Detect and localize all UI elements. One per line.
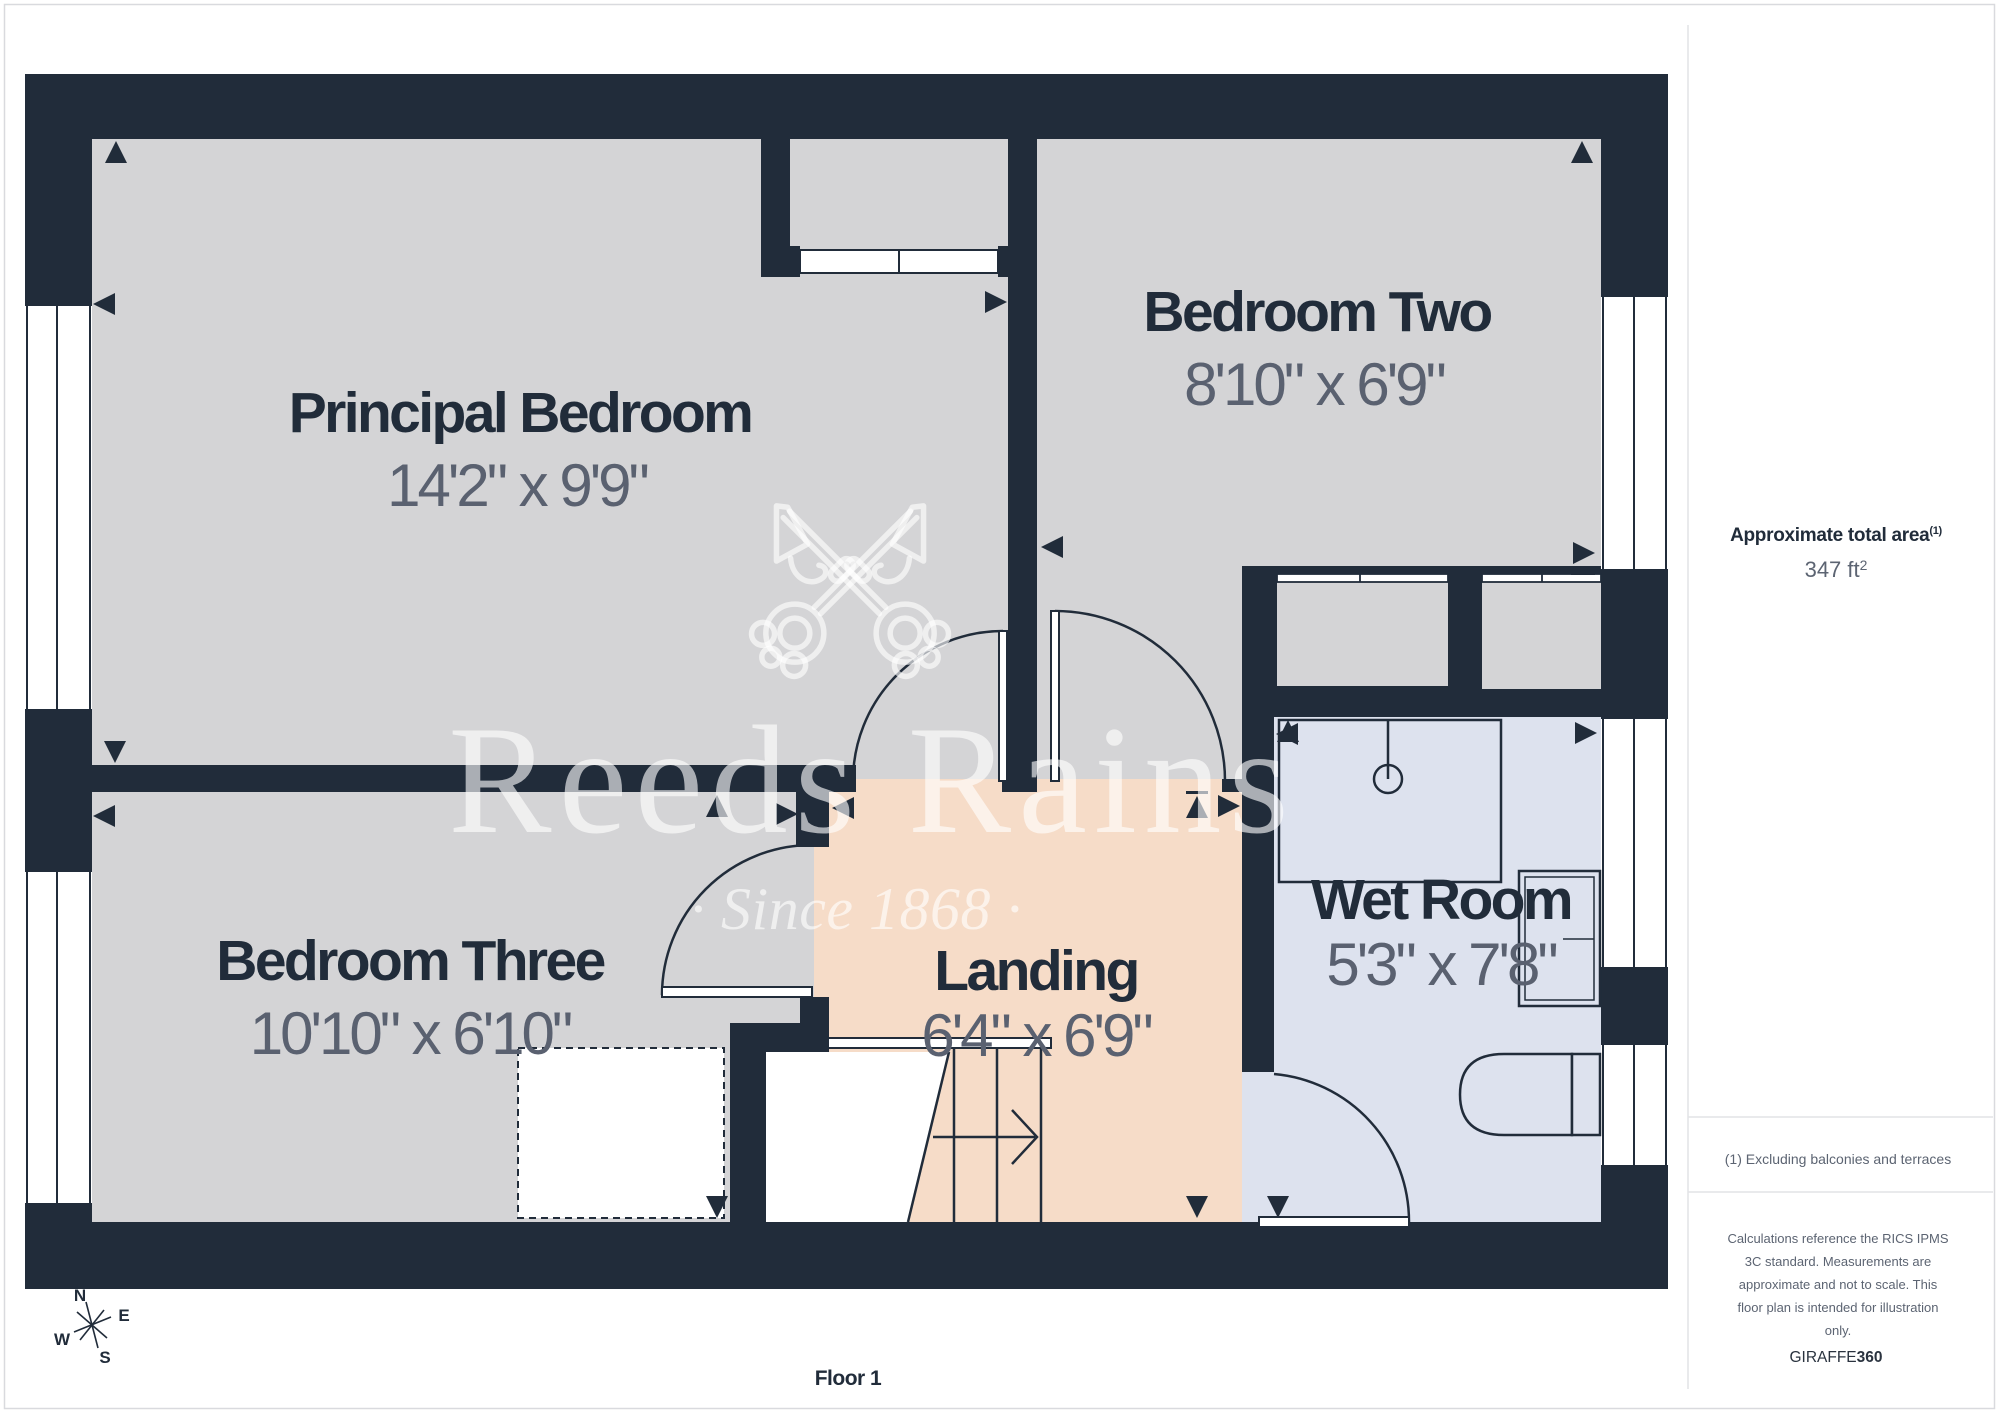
svg-text:N: N bbox=[74, 1286, 86, 1305]
svg-text:E: E bbox=[118, 1306, 129, 1325]
svg-text:8'10" x 6'9": 8'10" x 6'9" bbox=[1184, 351, 1444, 418]
svg-text:Principal Bedroom: Principal Bedroom bbox=[289, 381, 752, 445]
svg-text:Bedroom Two: Bedroom Two bbox=[1143, 280, 1491, 344]
svg-text:(1) Excluding balconies and te: (1) Excluding balconies and terraces bbox=[1725, 1151, 1951, 1167]
svg-text:Reeds Rains: Reeds Rains bbox=[448, 694, 1296, 866]
svg-text:10'10" x 6'10": 10'10" x 6'10" bbox=[250, 1000, 571, 1067]
svg-text:S: S bbox=[99, 1348, 110, 1367]
svg-text:only.: only. bbox=[1825, 1323, 1852, 1338]
svg-text:Landing: Landing bbox=[934, 939, 1137, 1003]
svg-text:approximate and not to scale.: approximate and not to scale. This bbox=[1739, 1277, 1938, 1292]
svg-text:Wet Room: Wet Room bbox=[1311, 868, 1571, 932]
svg-text:GIRAFFE360: GIRAFFE360 bbox=[1789, 1349, 1882, 1366]
svg-text:14'2" x 9'9": 14'2" x 9'9" bbox=[387, 452, 647, 519]
svg-text:6'4" x 6'9": 6'4" x 6'9" bbox=[921, 1002, 1151, 1069]
svg-text:Bedroom Three: Bedroom Three bbox=[216, 929, 604, 993]
svg-text:W: W bbox=[54, 1330, 71, 1349]
svg-text:3C standard. Measurements are: 3C standard. Measurements are bbox=[1745, 1254, 1931, 1269]
svg-text:· Since 1868 ·: · Since 1868 · bbox=[690, 876, 1022, 942]
svg-text:floor plan is intended for ill: floor plan is intended for illustration bbox=[1738, 1300, 1939, 1315]
svg-text:5'3" x 7'8": 5'3" x 7'8" bbox=[1326, 931, 1556, 998]
svg-text:Floor 1: Floor 1 bbox=[815, 1367, 882, 1390]
svg-text:Calculations reference the RIC: Calculations reference the RICS IPMS bbox=[1727, 1231, 1948, 1246]
svg-text:Approximate total area(1): Approximate total area(1) bbox=[1730, 525, 1942, 546]
svg-text:347 ft2: 347 ft2 bbox=[1805, 557, 1868, 582]
